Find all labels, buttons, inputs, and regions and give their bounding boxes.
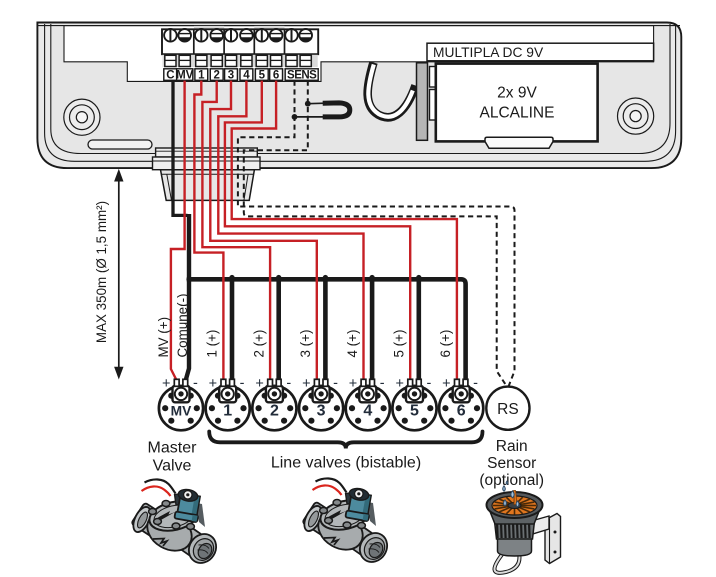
svg-text:MV (+): MV (+)	[156, 317, 171, 358]
svg-text:+: +	[302, 376, 310, 392]
svg-text:-: -	[333, 376, 338, 392]
svg-text:Rain: Rain	[496, 438, 528, 455]
svg-text:SENS: SENS	[287, 69, 317, 81]
svg-text:MV: MV	[176, 69, 194, 81]
svg-text:2 (+): 2 (+)	[251, 330, 266, 358]
svg-text:C: C	[166, 69, 174, 81]
svg-text:Comune(-): Comune(-)	[175, 294, 190, 358]
svg-text:4: 4	[363, 403, 372, 420]
svg-text:6: 6	[273, 69, 279, 81]
svg-text:MAX 350m (Ø 1,5 mm²): MAX 350m (Ø 1,5 mm²)	[94, 201, 109, 343]
svg-text:(optional): (optional)	[479, 472, 544, 489]
svg-text:Master: Master	[148, 440, 198, 457]
svg-text:+: +	[162, 376, 170, 392]
svg-text:6: 6	[457, 403, 466, 420]
svg-text:-: -	[380, 376, 385, 392]
svg-text:MULTIPLA DC 9V: MULTIPLA DC 9V	[433, 45, 544, 60]
svg-text:+: +	[442, 376, 450, 392]
svg-text:Valve: Valve	[153, 458, 192, 475]
svg-text:2: 2	[213, 69, 219, 81]
svg-text:4: 4	[243, 69, 250, 81]
svg-text:RS: RS	[497, 401, 519, 418]
svg-text:+: +	[395, 376, 403, 392]
svg-text:1: 1	[223, 403, 232, 420]
svg-text:5: 5	[410, 403, 419, 420]
svg-text:1 (+): 1 (+)	[205, 330, 220, 358]
svg-text:-: -	[286, 376, 291, 392]
svg-text:3: 3	[228, 69, 234, 81]
svg-text:+: +	[255, 376, 263, 392]
svg-text:6 (+): 6 (+)	[438, 330, 453, 358]
svg-text:ALCALINE: ALCALINE	[480, 105, 555, 122]
svg-text:5 (+): 5 (+)	[392, 330, 407, 358]
svg-text:1: 1	[198, 69, 205, 81]
svg-text:+: +	[209, 376, 217, 392]
svg-text:-: -	[240, 376, 245, 392]
svg-text:-: -	[426, 376, 431, 392]
svg-text:MV: MV	[171, 404, 192, 419]
svg-text:3 (+): 3 (+)	[298, 330, 313, 358]
svg-text:Line valves (bistable): Line valves (bistable)	[271, 455, 421, 472]
svg-text:5: 5	[259, 69, 266, 81]
svg-text:2: 2	[270, 403, 279, 420]
svg-text:4 (+): 4 (+)	[345, 330, 360, 358]
svg-text:2x 9V: 2x 9V	[497, 85, 537, 102]
svg-text:-: -	[193, 376, 198, 392]
svg-text:+: +	[349, 376, 357, 392]
svg-text:Sensor: Sensor	[487, 455, 536, 472]
svg-text:3: 3	[317, 403, 326, 420]
svg-text:-: -	[473, 376, 478, 392]
